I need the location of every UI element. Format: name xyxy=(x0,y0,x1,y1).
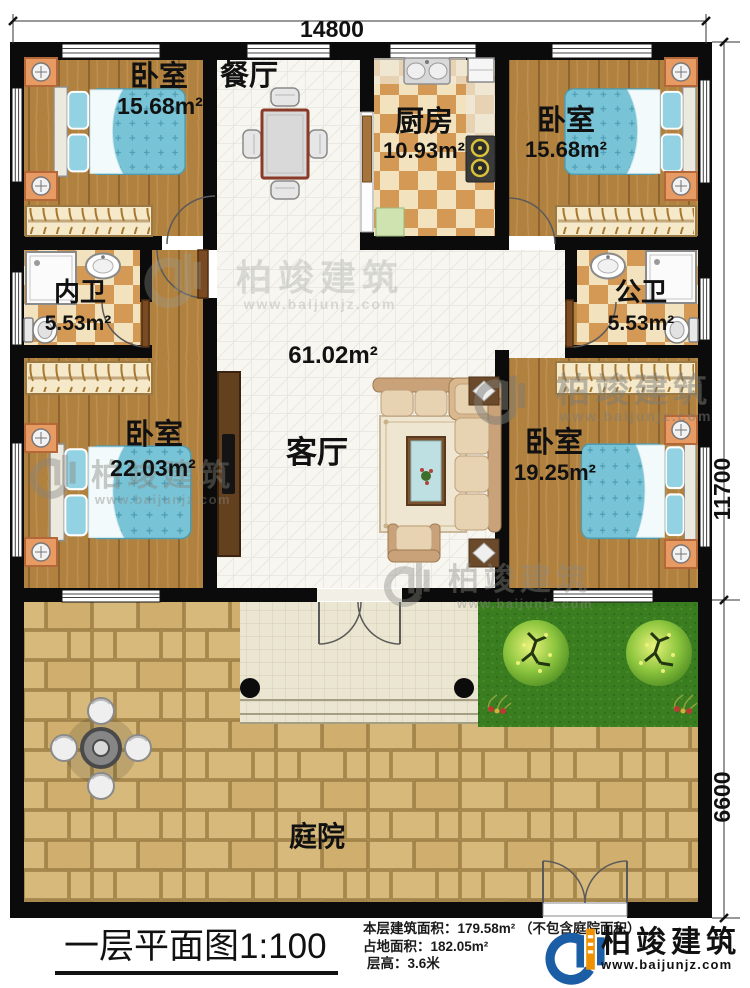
stat-floor-area: 本层建筑面积：179.58m² （不包含庭院面积） xyxy=(363,920,641,936)
dining-table xyxy=(262,110,308,178)
outdoor-chair xyxy=(88,773,114,799)
window-bedroom-tl-top xyxy=(62,44,160,58)
window-bath-public-right xyxy=(700,278,710,340)
watermark-site: www.baijunjz.com xyxy=(94,492,231,507)
window-bedroom-tr-top xyxy=(552,44,652,58)
sofa-cushion xyxy=(455,494,489,530)
armchair xyxy=(388,524,440,562)
dining-chair xyxy=(243,130,261,158)
washbasin xyxy=(591,254,625,279)
label-hall-area: 61.02m² xyxy=(288,342,377,369)
outdoor-chair xyxy=(125,735,151,761)
nightstand xyxy=(665,58,697,86)
outdoor-chair xyxy=(88,698,114,724)
dim-depth-house: 11700 xyxy=(709,458,735,521)
watermark-site: www.baijunjz.com xyxy=(243,296,397,312)
wall-v4 xyxy=(203,298,217,588)
porch-column xyxy=(240,678,260,698)
wall-bath-public-left xyxy=(565,250,577,302)
sofa-cushion xyxy=(455,418,489,454)
wall-h-left xyxy=(24,236,162,250)
sofa-cushion xyxy=(381,390,413,416)
wall-kitchen-bottom xyxy=(360,236,495,250)
floor-plan-canvas: 柏竣建筑 www.baijunjz.com 柏竣建筑 www.baijunjz.… xyxy=(0,0,750,988)
wardrobe-tl xyxy=(26,206,152,236)
door-leaf-bath-public xyxy=(566,300,573,347)
label-bath-public-area: 5.53m² xyxy=(608,312,675,335)
label-bath-inner: 内卫 xyxy=(54,277,106,307)
title-underline xyxy=(55,971,338,975)
wall-bath-inner-bottom xyxy=(24,345,152,358)
window-bedroom-bl-left xyxy=(12,443,22,557)
nightstand xyxy=(25,538,57,566)
nightstand xyxy=(665,172,697,200)
floor-porch xyxy=(240,602,478,723)
plan-title: 一层平面图1:100 xyxy=(64,927,327,966)
label-bath-public: 公卫 xyxy=(615,277,667,307)
brand-logo-icon xyxy=(545,929,604,985)
kitchen-sink xyxy=(404,58,450,84)
sofa-cushion xyxy=(415,390,447,416)
footer: 一层平面图1:100 本层建筑面积：179.58m² （不包含庭院面积） 占地面… xyxy=(55,920,741,985)
sofa-cushion xyxy=(455,456,489,492)
label-bedroom-tr-area: 15.68m² xyxy=(525,137,607,162)
wall-h-right xyxy=(555,236,698,250)
label-bedroom-tr: 卧室 xyxy=(537,103,595,137)
washbasin xyxy=(86,254,120,279)
wall-bath-public-bottom xyxy=(565,345,698,358)
nightstand xyxy=(25,172,57,200)
gate-threshold xyxy=(543,903,627,916)
wardrobe-bl xyxy=(26,362,152,394)
wall-v1 xyxy=(203,60,217,250)
wall-kitchen-left-a xyxy=(360,60,374,112)
nightstand xyxy=(665,540,697,568)
kitchen-slider-leaf xyxy=(363,116,372,182)
outdoor-chair xyxy=(51,735,77,761)
brand-site: www.baijunjz.com xyxy=(600,957,732,972)
label-bedroom-tl: 卧室 xyxy=(130,59,188,93)
watermark-text: 柏竣建筑 xyxy=(236,257,404,298)
label-bedroom-bl-area: 22.03m² xyxy=(110,455,196,481)
watermark-text: 柏竣建筑 xyxy=(556,371,712,410)
dining-chair xyxy=(309,130,327,158)
floor-corridor xyxy=(509,250,565,358)
window-dining-top xyxy=(247,44,330,58)
dim-width: 14800 xyxy=(300,16,364,42)
window-bedroom-bl-front xyxy=(62,590,160,602)
kitchen-mat xyxy=(376,208,404,236)
stove xyxy=(466,136,495,182)
porch-column xyxy=(454,678,474,698)
label-bedroom-bl: 卧室 xyxy=(125,417,183,451)
window-kitchen-top xyxy=(390,44,476,58)
coffee-table xyxy=(407,437,445,505)
fridge xyxy=(468,58,494,82)
door-leaf-bath-inner xyxy=(142,300,149,347)
label-bedroom-br-area: 19.25m² xyxy=(514,460,596,485)
watermark-text: 柏竣建筑 xyxy=(448,562,592,597)
brand-name: 柏竣建筑 xyxy=(601,925,741,959)
label-kitchen-area: 10.93m² xyxy=(383,138,465,163)
tree xyxy=(626,620,692,686)
floor-plan-page: 柏竣建筑 www.baijunjz.com 柏竣建筑 www.baijunjz.… xyxy=(0,0,750,988)
label-bedroom-tl-area: 15.68m² xyxy=(117,93,203,119)
dining-chair xyxy=(271,181,299,199)
watermark-site: www.baijunjz.com xyxy=(559,408,713,424)
label-hall: 客厅 xyxy=(286,435,348,470)
label-bath-inner-area: 5.53m² xyxy=(45,312,112,335)
label-kitchen: 厨房 xyxy=(395,105,453,138)
label-courtyard: 庭院 xyxy=(289,820,345,852)
stat-height: 层高：3.6米 xyxy=(367,955,440,971)
stat-footprint: 占地面积：182.05m² xyxy=(363,938,489,954)
window-bath-inner-left xyxy=(12,272,22,345)
window-bedroom-tr-right xyxy=(700,80,710,183)
window-bedroom-tl-left xyxy=(12,88,22,182)
wall-kitchen-right xyxy=(495,60,509,250)
nightstand xyxy=(25,58,57,86)
nightstand xyxy=(25,424,57,452)
label-dining: 餐厅 xyxy=(220,59,278,92)
wall-bottom-left xyxy=(10,902,543,918)
label-bedroom-br: 卧室 xyxy=(525,425,583,459)
dim-depth-yard: 6600 xyxy=(709,771,735,822)
wardrobe-tr xyxy=(556,206,696,236)
watermark-site: www.baijunjz.com xyxy=(456,596,593,611)
tree xyxy=(503,620,569,686)
wall-bottom-right xyxy=(627,902,712,918)
